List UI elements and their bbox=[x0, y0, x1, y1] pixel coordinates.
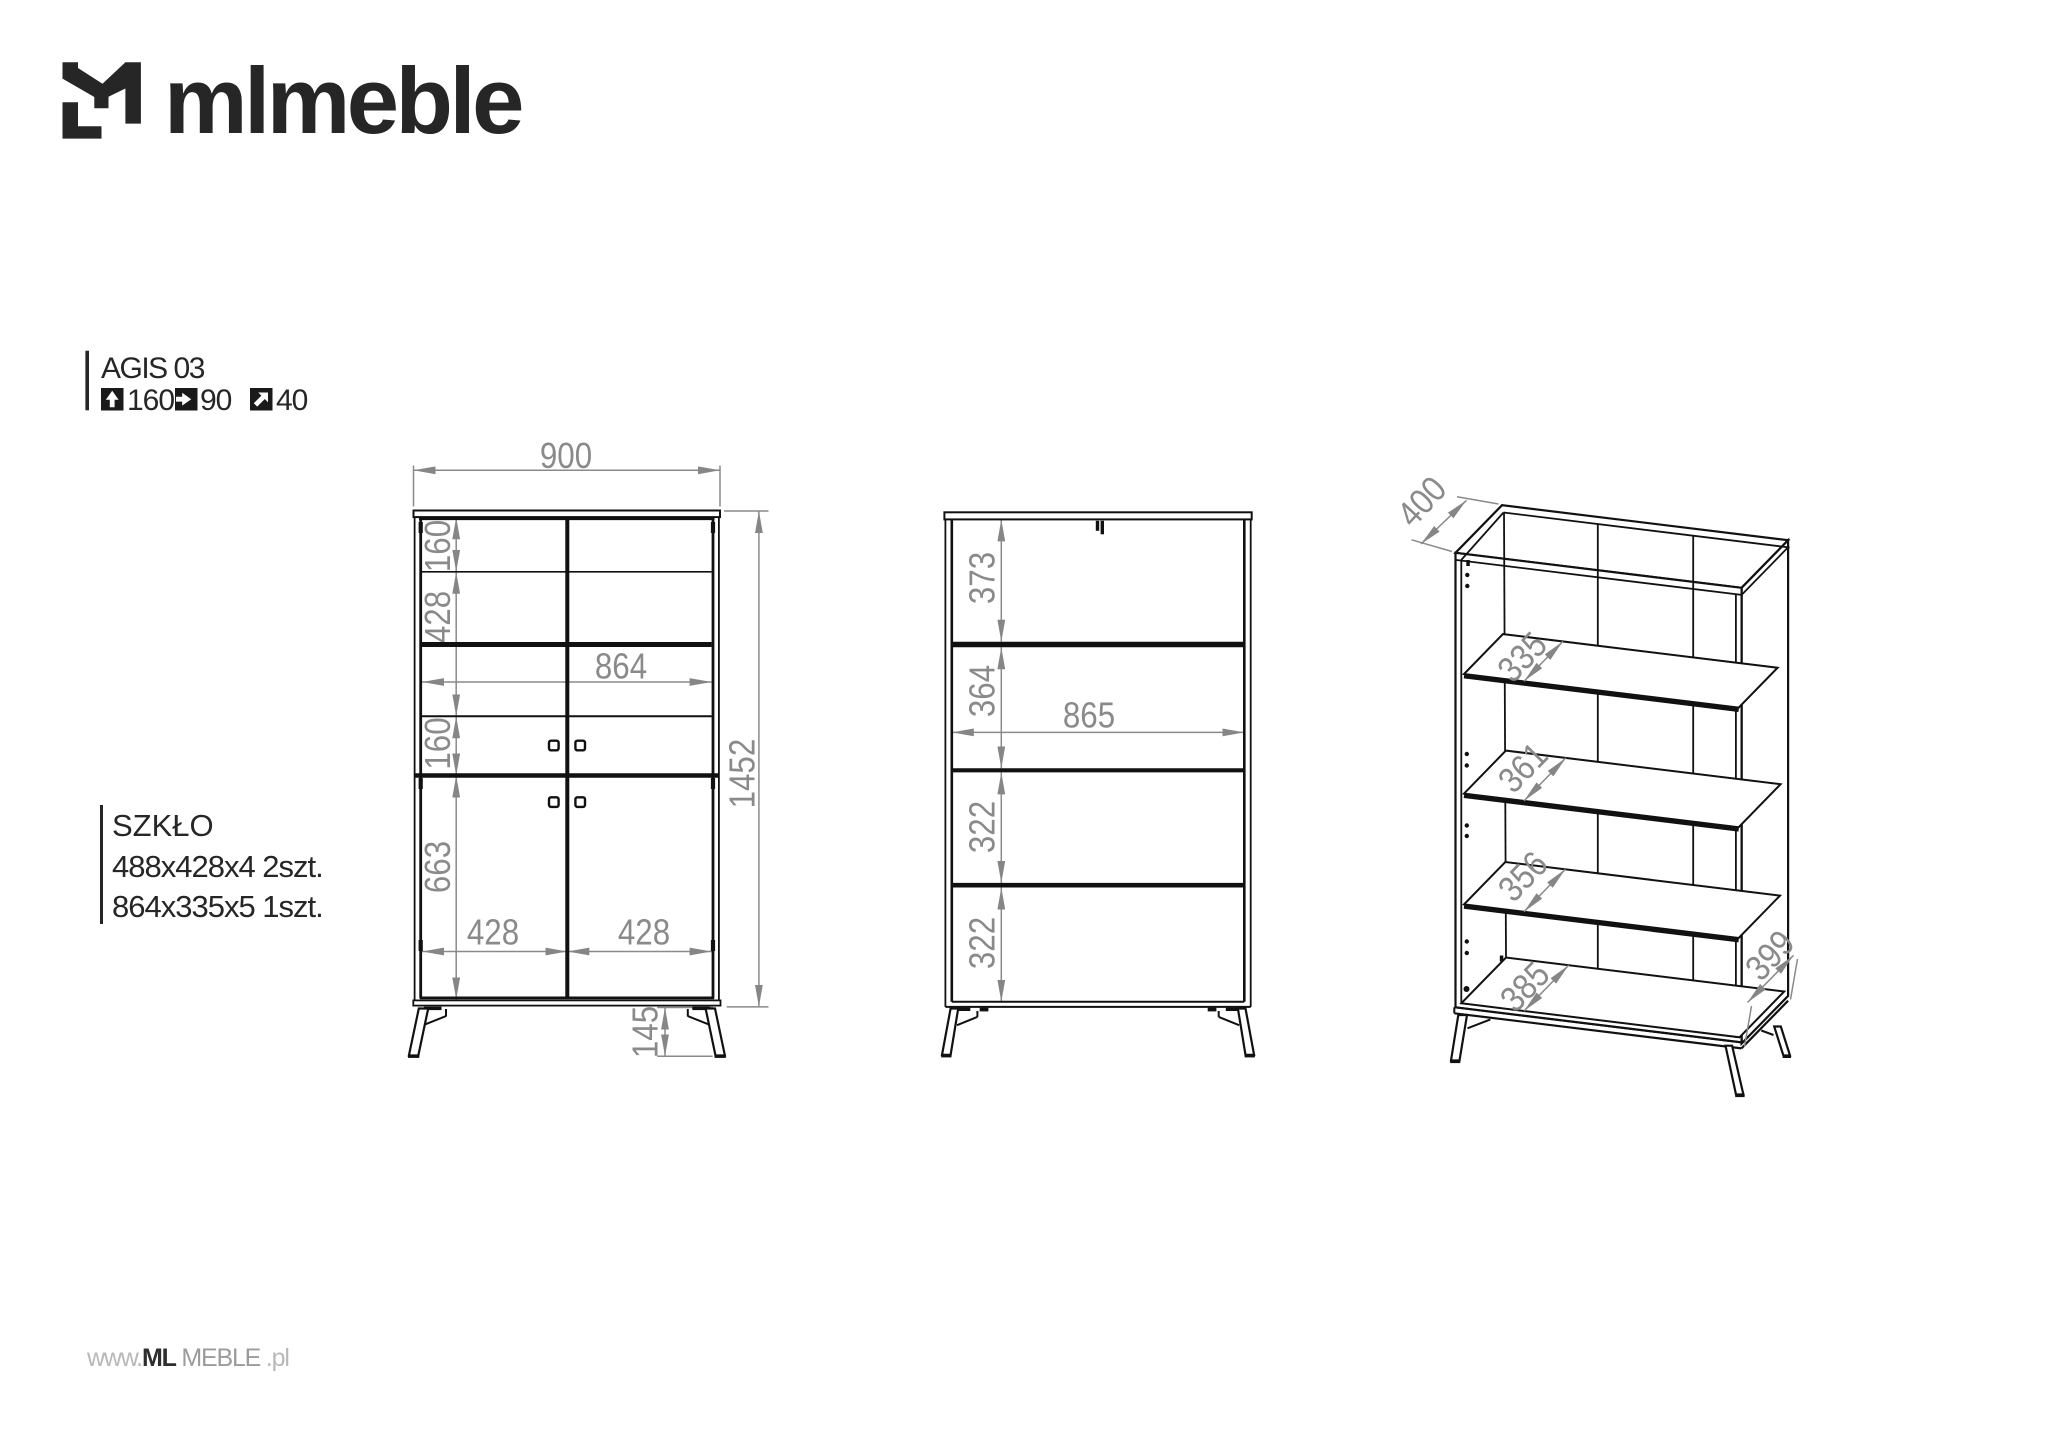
svg-text:AGIS 03: AGIS 03 bbox=[101, 352, 205, 385]
svg-text:400: 400 bbox=[1389, 469, 1454, 535]
svg-text:663: 663 bbox=[418, 841, 459, 893]
svg-text:364: 364 bbox=[963, 665, 1004, 717]
svg-text:90: 90 bbox=[200, 384, 232, 417]
svg-text:160: 160 bbox=[418, 520, 459, 572]
svg-text:373: 373 bbox=[963, 552, 1004, 604]
svg-text:864: 864 bbox=[595, 646, 647, 687]
svg-text:160: 160 bbox=[418, 717, 459, 769]
svg-text:160: 160 bbox=[127, 384, 174, 417]
svg-text:mlmeble: mlmeble bbox=[164, 48, 522, 153]
svg-text:428: 428 bbox=[418, 591, 459, 643]
svg-text:428: 428 bbox=[467, 912, 519, 953]
svg-text:428: 428 bbox=[618, 912, 670, 953]
svg-text:1452: 1452 bbox=[722, 739, 763, 809]
svg-text:www.ML MEBLE .pl: www.ML MEBLE .pl bbox=[86, 1344, 289, 1372]
svg-text:322: 322 bbox=[963, 917, 1004, 969]
svg-text:SZKŁO: SZKŁO bbox=[112, 808, 214, 843]
svg-text:145: 145 bbox=[625, 1006, 666, 1058]
svg-text:865: 865 bbox=[1063, 695, 1115, 736]
svg-text:900: 900 bbox=[540, 436, 592, 477]
svg-text:40: 40 bbox=[276, 384, 308, 417]
svg-text:864x335x5 1szt.: 864x335x5 1szt. bbox=[112, 889, 323, 924]
svg-text:322: 322 bbox=[963, 801, 1004, 853]
svg-text:488x428x4 2szt.: 488x428x4 2szt. bbox=[112, 849, 323, 884]
